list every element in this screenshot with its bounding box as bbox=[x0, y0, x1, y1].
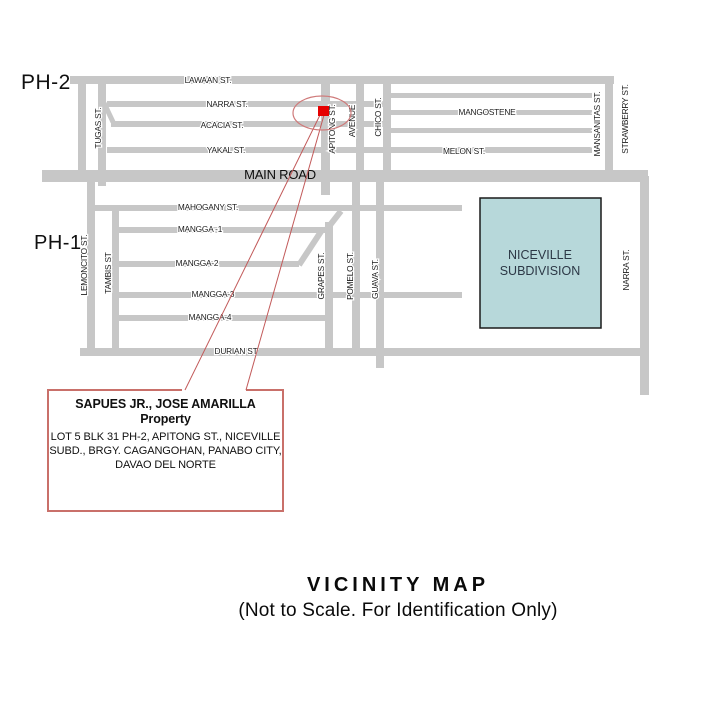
street-label-mangga-2: MANGGA-2 bbox=[176, 258, 219, 268]
road-chico bbox=[383, 80, 391, 176]
property-address-line-3: DAVAO DEL NORTE bbox=[48, 458, 283, 472]
street-label-mangga-1: MANGGA -1 bbox=[178, 224, 223, 234]
street-label-yakal-st: YAKAL ST. bbox=[207, 145, 245, 155]
street-label-narra-st-ph2: NARRA ST. bbox=[206, 99, 247, 109]
street-label-narra-st-right: NARRA ST. bbox=[621, 249, 631, 290]
street-label-grapes-st: GRAPES ST. bbox=[316, 253, 326, 300]
street-label-lawaan-st: LAWAAN ST. bbox=[185, 75, 232, 85]
map-subtitle: (Not to Scale. For Identification Only) bbox=[98, 600, 698, 622]
street-label-pomelo-st: POMELO ST. bbox=[345, 252, 355, 300]
street-label-durian-st: DURIAN ST bbox=[215, 346, 258, 356]
street-label-tugas-st: TUGAS ST. bbox=[93, 107, 103, 148]
road-narra-right bbox=[640, 176, 649, 395]
street-label-mansanitas-st: MANSANITAS ST. bbox=[592, 92, 602, 157]
road-main-road bbox=[42, 170, 648, 182]
road-mangga-3 bbox=[115, 292, 462, 298]
street-label-mangostene: MANGOSTENE bbox=[458, 107, 516, 117]
road-lawaan bbox=[70, 76, 614, 84]
street-label-mangga-4: MANGGA-4 bbox=[189, 312, 232, 322]
street-label-chico-st: CHICO ST. bbox=[373, 97, 383, 136]
road-mahogany bbox=[91, 205, 462, 211]
niceville-label-line-2: SUBDIVISION bbox=[500, 264, 581, 278]
road-yakal-melon bbox=[107, 147, 592, 153]
street-label-mangga-3: MANGGA-3 bbox=[192, 289, 235, 299]
road-east-row-1 bbox=[390, 93, 592, 98]
street-label-mahogany-st: MAHOGANY ST. bbox=[178, 202, 238, 212]
street-label-main-road: MAIN ROAD bbox=[244, 167, 316, 182]
street-label-acacia-st: ACACIA ST. bbox=[201, 120, 244, 130]
property-word: Property bbox=[48, 412, 283, 427]
road-mahogany-grapes bbox=[327, 211, 341, 229]
title-block: VICINITY MAP (Not to Scale. For Identifi… bbox=[98, 574, 698, 622]
street-label-tambis-st: TAMBIS ST bbox=[103, 252, 113, 294]
street-label-melon-st: MELON ST. bbox=[443, 146, 485, 156]
vicinity-map-page: NICEVILLESUBDIVISIONLAWAAN ST.NARRA ST.A… bbox=[0, 0, 720, 720]
niceville-subdivision-block bbox=[480, 198, 601, 328]
phase-label-ph1: PH-1 bbox=[34, 232, 82, 255]
map-title: VICINITY MAP bbox=[98, 574, 698, 597]
road-avenue bbox=[356, 84, 364, 176]
road-grapes bbox=[325, 222, 333, 352]
property-address-line-1: LOT 5 BLK 31 PH-2, APITONG ST., NICEVILL… bbox=[48, 430, 283, 444]
niceville-label-line-1: NICEVILLE bbox=[508, 248, 572, 262]
property-address-line-2: SUBD., BRGY. CAGANGOHAN, PANABO CITY, bbox=[48, 444, 283, 458]
road-tambis bbox=[112, 205, 119, 352]
property-marker bbox=[318, 106, 329, 116]
road-mansanitas bbox=[605, 80, 613, 176]
phase-label-ph2: PH-2 bbox=[21, 71, 71, 95]
street-label-strawberry-st: STRAWBERRY ST. bbox=[620, 84, 630, 153]
road-west-vertical bbox=[78, 76, 86, 176]
property-callout-text: SAPUES JR., JOSE AMARILLA Property LOT 5… bbox=[48, 397, 283, 472]
property-owner-name: SAPUES JR., JOSE AMARILLA bbox=[48, 397, 283, 412]
street-label-guava-st: GUAVA ST. bbox=[370, 259, 380, 299]
road-durian bbox=[80, 348, 648, 356]
road-east-row-3 bbox=[390, 128, 592, 133]
